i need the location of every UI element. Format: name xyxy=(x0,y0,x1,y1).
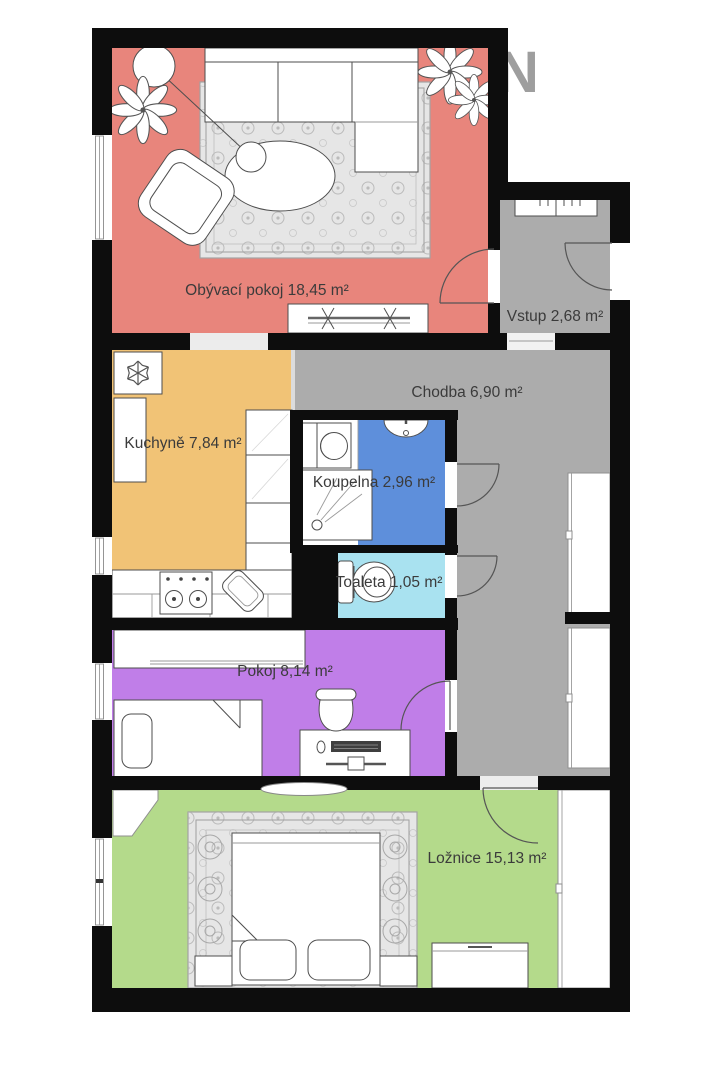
room-label-toilet: Toaleta 1,05 m² xyxy=(336,574,443,591)
wall-segment xyxy=(290,410,303,552)
floorplan-page: N xyxy=(0,0,720,1080)
bedroom-wardrobe xyxy=(556,790,610,988)
mouse xyxy=(317,741,325,753)
living-door-opening xyxy=(488,250,500,303)
wall-segment xyxy=(508,182,630,200)
dresser xyxy=(432,943,528,988)
nightstand xyxy=(380,956,417,986)
refrigerator xyxy=(114,352,162,394)
toilet-door-opening xyxy=(445,555,457,598)
plant xyxy=(109,76,176,143)
pokoj-door-opening xyxy=(445,680,457,732)
window xyxy=(92,663,112,720)
room-label-vstup: Vstup 2,68 m² xyxy=(507,308,604,325)
washing-machine xyxy=(301,423,351,468)
kitchen-hall-floor-joint xyxy=(291,350,295,412)
coat-rack xyxy=(515,198,597,216)
room-label-bathroom: Koupelna 2,96 m² xyxy=(313,474,435,491)
wall-segment xyxy=(112,618,458,630)
entrance-door-opening xyxy=(610,243,630,300)
nightstand xyxy=(195,956,232,986)
wall-segment xyxy=(92,776,630,790)
room-label-chodba: Chodba 6,90 m² xyxy=(411,384,522,401)
room-label-living: Obývací pokoj 18,45 m² xyxy=(185,282,349,299)
wall-segment xyxy=(295,410,458,420)
kitchen-cabinet-column xyxy=(246,410,292,572)
window xyxy=(92,838,112,926)
wall-segment xyxy=(565,612,612,624)
bathroom-door-opening xyxy=(445,462,457,508)
vstup-hall-threshold xyxy=(507,333,555,350)
bedroom-wall-light xyxy=(261,783,347,796)
single-bed xyxy=(114,700,262,778)
desk xyxy=(300,730,410,778)
wall-segment xyxy=(92,988,630,1012)
room-label-kitchen: Kuchyně 7,84 m² xyxy=(124,435,241,452)
kitchen-opening-threshold xyxy=(190,333,268,350)
wall-segment xyxy=(488,28,508,200)
room-label-pokoj: Pokoj 8,14 m² xyxy=(237,663,333,680)
kitchen-counter xyxy=(112,568,292,618)
stove xyxy=(160,572,212,614)
window xyxy=(92,537,112,575)
double-bed xyxy=(232,833,380,985)
wall-segment xyxy=(92,28,508,48)
wall-segment xyxy=(610,182,630,1012)
window xyxy=(92,135,112,240)
hallway-closet xyxy=(566,473,610,613)
wall-segment xyxy=(292,545,338,630)
floorplan-drawing: N xyxy=(0,0,720,1080)
room-label-bedroom: Ložnice 15,13 m² xyxy=(428,850,547,867)
hallway-closet xyxy=(566,628,610,768)
tv-bench xyxy=(288,304,428,333)
